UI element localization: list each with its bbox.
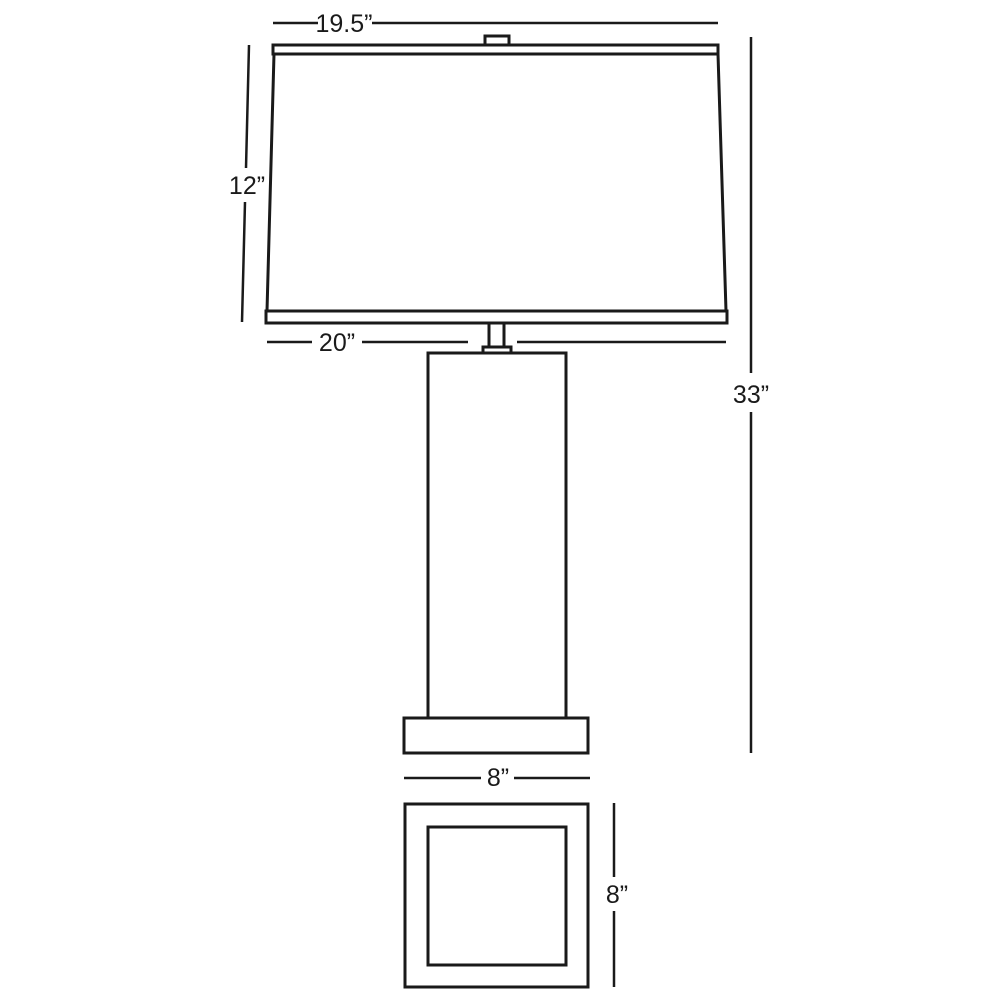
label-base-depth: 8” [606,881,628,909]
label-shade-height: 12” [229,172,265,200]
dimension-labels: 19.5” 12” 20” 33” 8” 8” [229,10,769,909]
dimension-lines [242,23,751,987]
label-shade-bottom-width: 20” [319,329,355,357]
lamp-dimension-diagram: 19.5” 12” 20” 33” 8” 8” [0,0,1000,1000]
shade-bottom-rim [266,311,727,323]
label-base-width: 8” [487,764,509,792]
shade-body [267,54,726,311]
diagram-svg: 19.5” 12” 20” 33” 8” 8” [0,0,1000,1000]
base-plan-view [405,804,588,987]
neck-stem [489,323,504,347]
base-side-view [404,718,588,753]
base-inner-square [428,827,566,965]
lamp-side-view [266,36,727,753]
lamp-column [428,353,566,718]
base-outer-square [405,804,588,987]
label-overall-height: 33” [733,381,769,409]
label-shade-top-width: 19.5” [316,10,373,38]
